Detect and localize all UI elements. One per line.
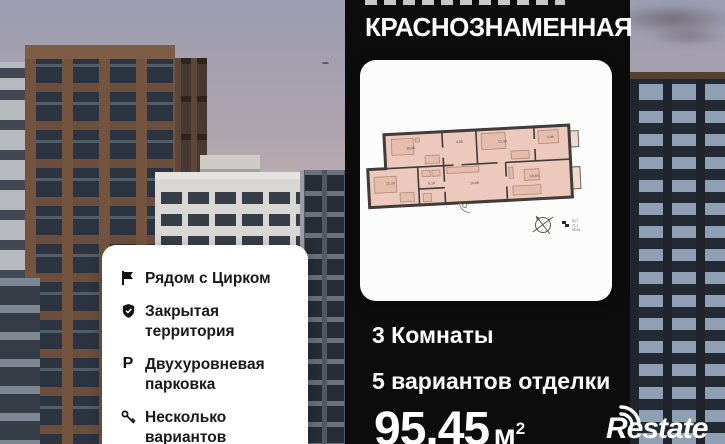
rooms-count: 3 Комнаты xyxy=(372,322,494,349)
svg-text:4.66: 4.66 xyxy=(456,140,463,144)
building-left-lower xyxy=(0,278,40,444)
cropped-title-line xyxy=(365,0,565,5)
bird xyxy=(322,62,329,64)
svg-text:71.1: 71.1 xyxy=(572,224,578,228)
info-panel: КРАСНОЗНАМЕННАЯ xyxy=(345,0,630,444)
ad-banner: КРАСНОЗНАМЕННАЯ xyxy=(0,0,725,444)
finish-options: 5 вариантов отделки xyxy=(372,368,610,395)
floorplan-drawing: 15.88 4.66 13.49 3.96 12.33 5.10 10.68 1… xyxy=(366,122,606,248)
svg-text:95.45: 95.45 xyxy=(572,228,580,232)
legend-icon xyxy=(562,221,569,227)
project-title: КРАСНОЗНАМЕННАЯ xyxy=(365,12,632,43)
svg-text:12.33: 12.33 xyxy=(386,181,395,185)
area-legend: 62.7 71.1 95.45 xyxy=(562,219,580,232)
feature-item: Несколько вариантов отделки xyxy=(120,408,292,444)
svg-text:10.68: 10.68 xyxy=(470,181,479,185)
svg-text:19.94: 19.94 xyxy=(530,174,539,178)
compass-icon xyxy=(533,216,553,234)
feature-label: Двухуровневая парковка xyxy=(145,355,292,395)
svg-text:62.7: 62.7 xyxy=(572,219,578,223)
restate-logo: Restate xyxy=(596,397,725,444)
features-card: Рядом с Цирком Закрытая территория P Дву… xyxy=(102,245,308,444)
svg-text:3.96: 3.96 xyxy=(547,135,554,139)
parking-icon: P xyxy=(120,356,136,372)
feature-item: Рядом с Цирком xyxy=(120,269,292,289)
area-value: 95.45 xyxy=(374,403,489,444)
area-unit: м2 xyxy=(494,419,526,444)
feature-label: Закрытая территория xyxy=(145,302,292,342)
svg-text:5.10: 5.10 xyxy=(428,181,435,185)
svg-text:13.49: 13.49 xyxy=(498,139,507,143)
floorplan-card: 15.88 4.66 13.49 3.96 12.33 5.10 10.68 1… xyxy=(360,60,612,301)
feature-item: P Двухуровневая парковка xyxy=(120,355,292,395)
entrance-marker xyxy=(463,204,467,208)
feature-label: Рядом с Цирком xyxy=(145,269,271,289)
shield-check-icon xyxy=(120,303,136,319)
building-right-dark xyxy=(630,72,725,444)
feature-item: Закрытая территория xyxy=(120,302,292,342)
svg-text:15.88: 15.88 xyxy=(406,146,415,150)
area-text: 95.45 м2 xyxy=(374,402,525,444)
flag-icon xyxy=(120,270,136,286)
logo-text: Restate xyxy=(606,412,708,444)
legend-values: 62.7 71.1 95.45 xyxy=(572,219,580,232)
key-icon xyxy=(120,409,136,425)
feature-label: Несколько вариантов отделки xyxy=(145,408,292,444)
cloud xyxy=(648,26,725,46)
